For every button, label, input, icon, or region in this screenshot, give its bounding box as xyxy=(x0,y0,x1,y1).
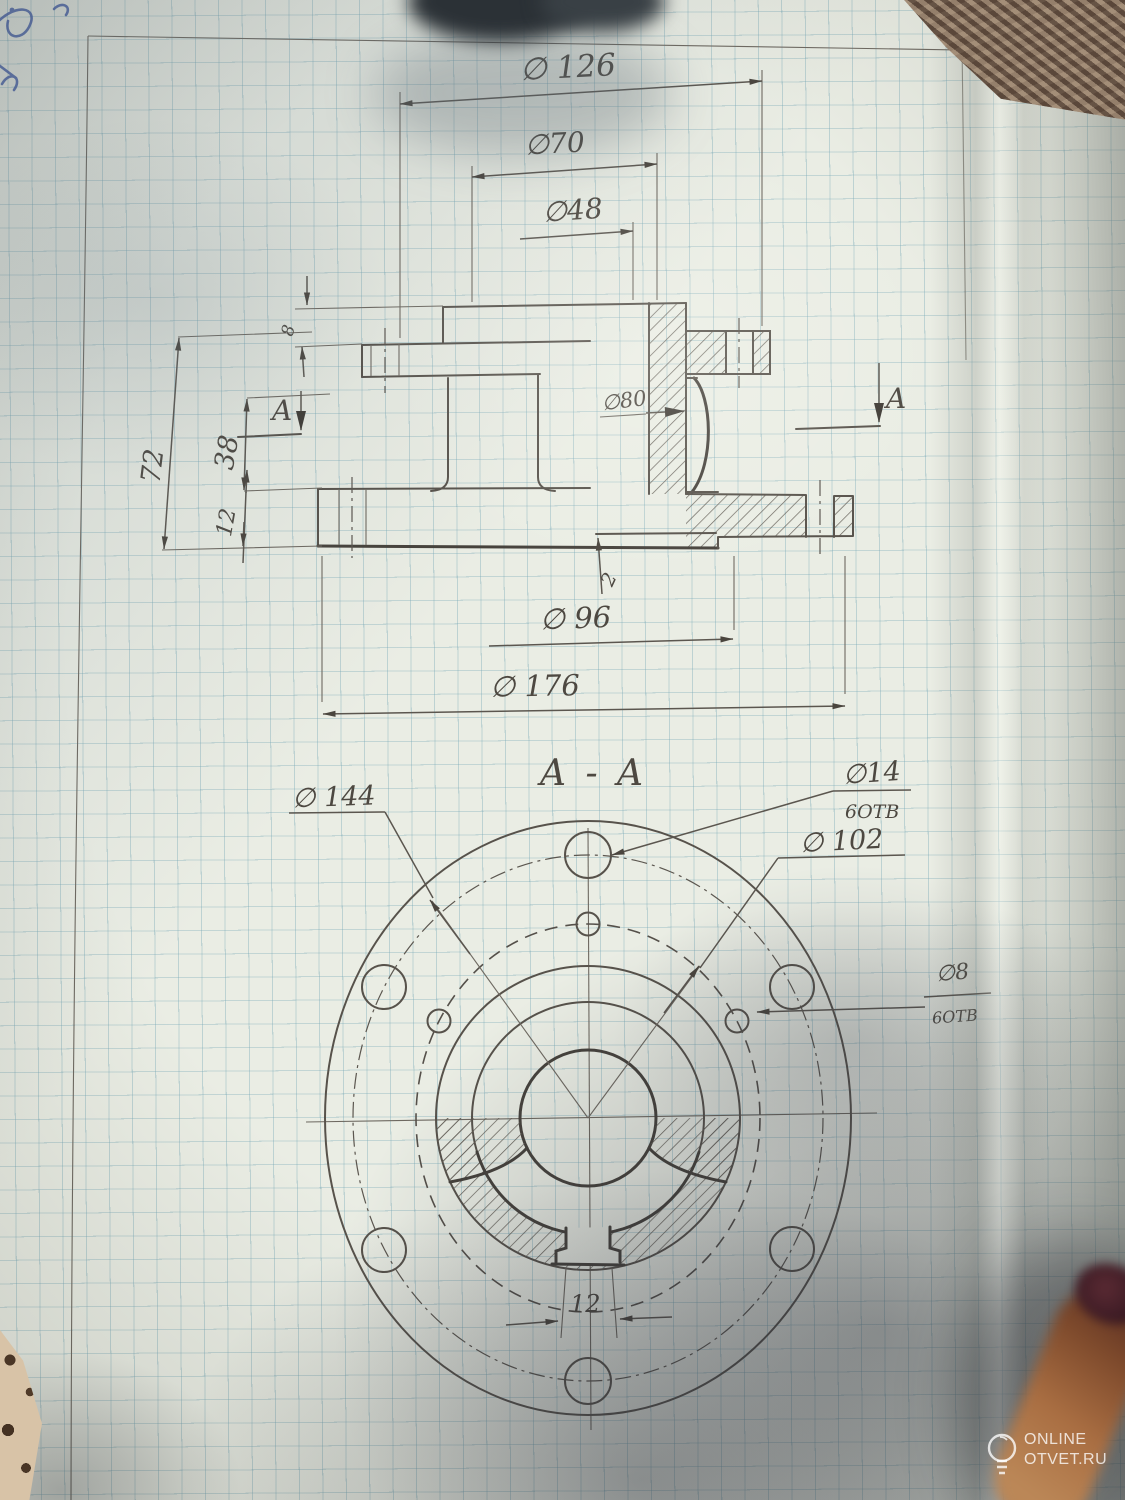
vertical-centerline xyxy=(588,828,591,1430)
dim-keyway-12: 12 xyxy=(570,1290,601,1318)
photo-of-notebook-drawing: ∅ 126 ∅70 ∅48 ∅80 72 38 12 xyxy=(0,0,1125,1500)
label-dia14-holes: 6ОТВ xyxy=(845,801,899,823)
section-cut-marks: A A xyxy=(238,363,906,437)
horizontal-centerline xyxy=(306,1113,877,1122)
bore-recess-curve xyxy=(692,378,708,492)
section-title: A - A xyxy=(537,753,647,794)
dim-72: 72 xyxy=(136,447,171,485)
dim-2: 2 xyxy=(596,569,621,590)
cut-label-left: A xyxy=(269,394,292,427)
section-view: A - A xyxy=(289,753,991,1430)
finger-shadow-top xyxy=(372,28,672,158)
dim-12-left: 12 xyxy=(212,507,241,539)
label-dia14: ∅14 xyxy=(842,756,902,791)
watermark-line1: ONLINE xyxy=(1024,1430,1107,1450)
dim-8: 8 xyxy=(278,323,300,339)
keyway-dimension: 12 xyxy=(506,1268,672,1338)
label-dia102: ∅ 102 xyxy=(799,824,884,859)
label-dia144: ∅ 144 xyxy=(291,780,376,814)
dim-dia48: ∅48 xyxy=(542,192,604,229)
dim-dia80: ∅80 xyxy=(600,386,648,415)
dim-dia176: ∅ 176 xyxy=(490,668,580,704)
cut-label-right: A xyxy=(883,382,906,415)
pen-scribbles xyxy=(0,5,68,90)
dim-38: 38 xyxy=(209,433,245,472)
lightbulb-icon xyxy=(982,1428,1022,1484)
watermark: ONLINE OTVET.RU xyxy=(982,1428,1122,1490)
section-view-labels: ∅ 144 ∅14 6ОТВ ∅ 102 ∅8 6ОТВ xyxy=(289,756,991,1118)
dim-dia96: ∅ 96 xyxy=(539,600,612,636)
hatch-hub-wall xyxy=(649,303,686,494)
watermark-line2: OTVET.RU xyxy=(1024,1450,1107,1470)
